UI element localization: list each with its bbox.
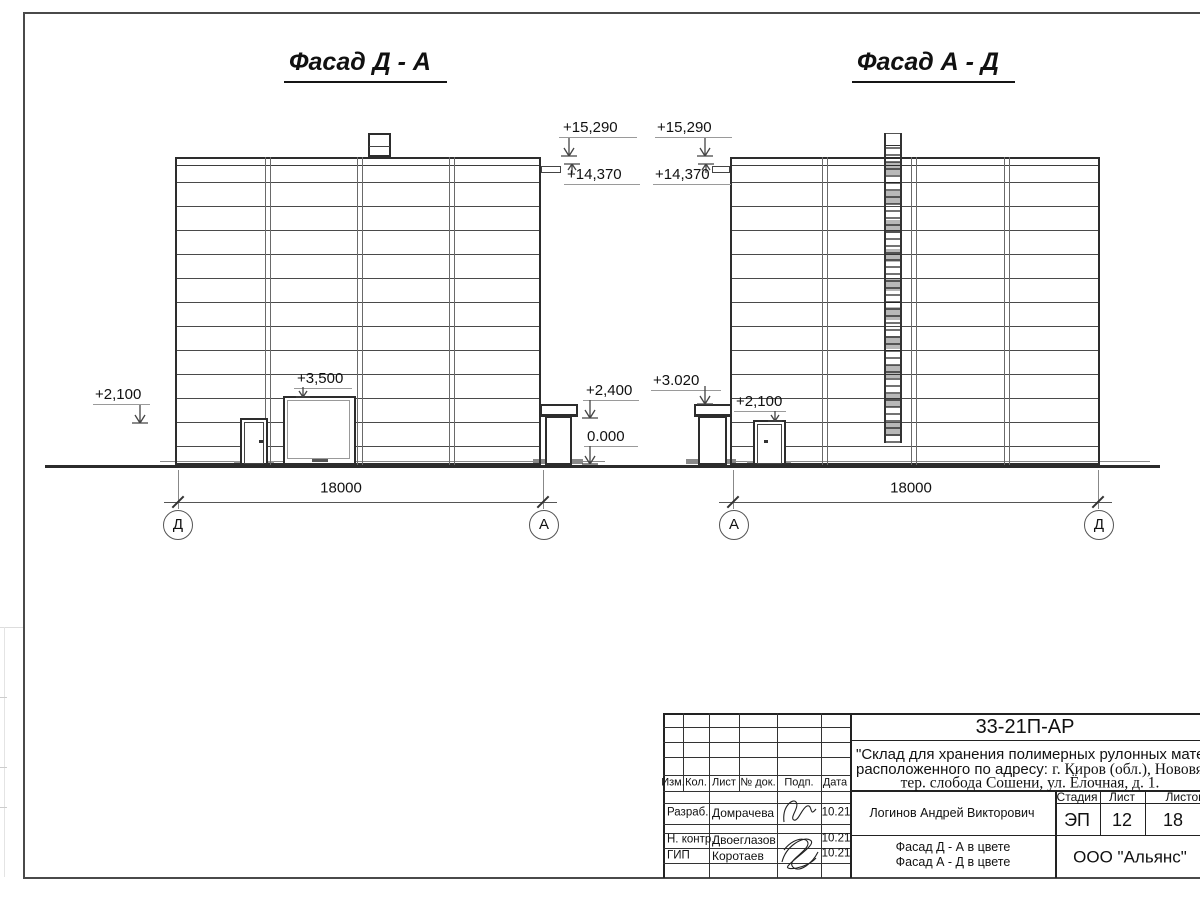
sheets-value: 18 <box>1163 811 1183 829</box>
elevation-label: +14,370 <box>567 167 622 182</box>
elevation-label: 0.000 <box>587 429 625 444</box>
line <box>0 807 7 808</box>
line <box>4 627 5 877</box>
door-right-leaf <box>757 424 782 464</box>
gate-sill <box>312 459 328 462</box>
titleblock-col-list: Лист <box>712 778 736 789</box>
line <box>0 767 7 768</box>
axis-bubble: А <box>529 510 559 540</box>
door-left-leaf <box>244 422 264 464</box>
dimension-value: 18000 <box>890 481 932 496</box>
titleblock-col-podp: Подп. <box>784 778 813 789</box>
axis-bubble: А <box>719 510 749 540</box>
project-title-line3: тер. слобода Сошени, ул. Ёлочная, д. 1. <box>901 775 1160 791</box>
line <box>23 12 25 879</box>
chief-name: Логинов Андрей Викторович <box>869 807 1034 820</box>
signature <box>776 828 822 879</box>
elevation-arrow-down-icon <box>696 386 714 406</box>
line <box>663 713 665 878</box>
leader-line <box>564 184 640 185</box>
exterior-ladder-top <box>886 134 900 146</box>
sheet-value: 12 <box>1112 811 1132 829</box>
elevation-label: +2,400 <box>586 383 632 398</box>
facade-right-title: Фасад А - Д <box>852 48 1015 83</box>
column-line <box>357 157 363 465</box>
line <box>663 727 850 728</box>
titleblock-col-doc: № док. <box>740 778 775 789</box>
roof-vent-box <box>368 133 391 157</box>
elevation-label: +2,100 <box>95 387 141 402</box>
elevation-arrow-down-icon <box>766 411 784 423</box>
role-name: Коротаев <box>712 850 764 862</box>
porch-body <box>545 416 572 465</box>
line <box>663 791 850 792</box>
sheet-title-line2: Фасад А - Д в цвете <box>896 856 1011 869</box>
elevation-arrow-down-icon <box>131 405 149 425</box>
elevation-label: +3.020 <box>653 373 699 388</box>
line <box>850 740 1200 741</box>
role-label: Н. контр. <box>667 834 714 846</box>
sheets-header: Листов <box>1166 791 1200 803</box>
axis-bubble: Д <box>163 510 193 540</box>
elevation-arrow-down-icon <box>581 400 599 420</box>
role-name: Двоеглазов <box>712 834 776 846</box>
gate-inner-frame <box>287 400 350 459</box>
titleblock-col-kol: Кол. <box>685 778 707 789</box>
doc-code: 33-21П-АР <box>976 717 1075 737</box>
company-name: ООО "Альянс" <box>1073 849 1187 866</box>
porch-body <box>698 416 727 465</box>
elevation-label: +15,290 <box>657 120 712 135</box>
elevation-label: +14,370 <box>655 167 710 182</box>
column-line <box>1004 157 1010 465</box>
role-date: 10.21 <box>822 848 851 860</box>
line <box>45 465 1160 468</box>
elevation-label: +15,290 <box>563 120 618 135</box>
facade-left-title: Фасад Д - А <box>284 48 447 83</box>
stage-value: ЭП <box>1064 811 1090 829</box>
role-date: 10.21 <box>822 807 851 819</box>
elevation-arrow-down-icon <box>560 138 578 158</box>
column-line <box>911 157 917 465</box>
line <box>709 713 710 878</box>
sheet-header: Лист <box>1109 791 1135 803</box>
line <box>663 803 850 804</box>
axis-bubble: Д <box>1084 510 1114 540</box>
line <box>23 12 1200 14</box>
sheet-title-line1: Фасад Д - А в цвете <box>896 841 1011 854</box>
dimension-value: 18000 <box>320 481 362 496</box>
elevation-arrow-down-icon <box>294 387 312 399</box>
door-handle <box>259 440 263 443</box>
titleblock-col-data: Дата <box>823 778 847 789</box>
line <box>663 757 850 758</box>
stage-header: Стадия <box>1057 791 1098 803</box>
elevation-arrow-down-icon <box>581 446 599 466</box>
line <box>663 742 850 743</box>
line <box>23 877 1200 879</box>
elevation-label: +2,100 <box>736 394 782 409</box>
line <box>663 824 850 825</box>
canopy-projection <box>541 166 561 173</box>
line <box>1100 790 1101 835</box>
roof-vent-divider <box>369 146 390 147</box>
line <box>1145 790 1146 835</box>
elevation-label: +3,500 <box>297 371 343 386</box>
door-handle <box>764 440 768 443</box>
project-title-line1: "Склад для хранения полимерных рулонных … <box>856 747 1200 762</box>
line <box>719 502 1112 503</box>
leader-line <box>653 184 731 185</box>
role-label: Разраб. <box>667 807 708 819</box>
leader-line <box>655 137 732 138</box>
line <box>164 502 557 503</box>
elevation-arrow-down-icon <box>696 138 714 158</box>
line <box>663 713 1200 715</box>
role-name: Домрачева <box>712 807 774 819</box>
line <box>0 697 7 698</box>
role-date: 10.21 <box>822 833 851 845</box>
role-label: ГИП <box>667 850 690 862</box>
signature <box>780 796 820 831</box>
titleblock-col-izm: Изм. <box>661 778 685 789</box>
column-line <box>449 157 455 465</box>
exterior-ladder <box>884 133 902 443</box>
line <box>850 835 1200 836</box>
drawing-sheet: { "facades": { "left": { "title": "Фасад… <box>0 0 1200 900</box>
column-line <box>822 157 828 465</box>
